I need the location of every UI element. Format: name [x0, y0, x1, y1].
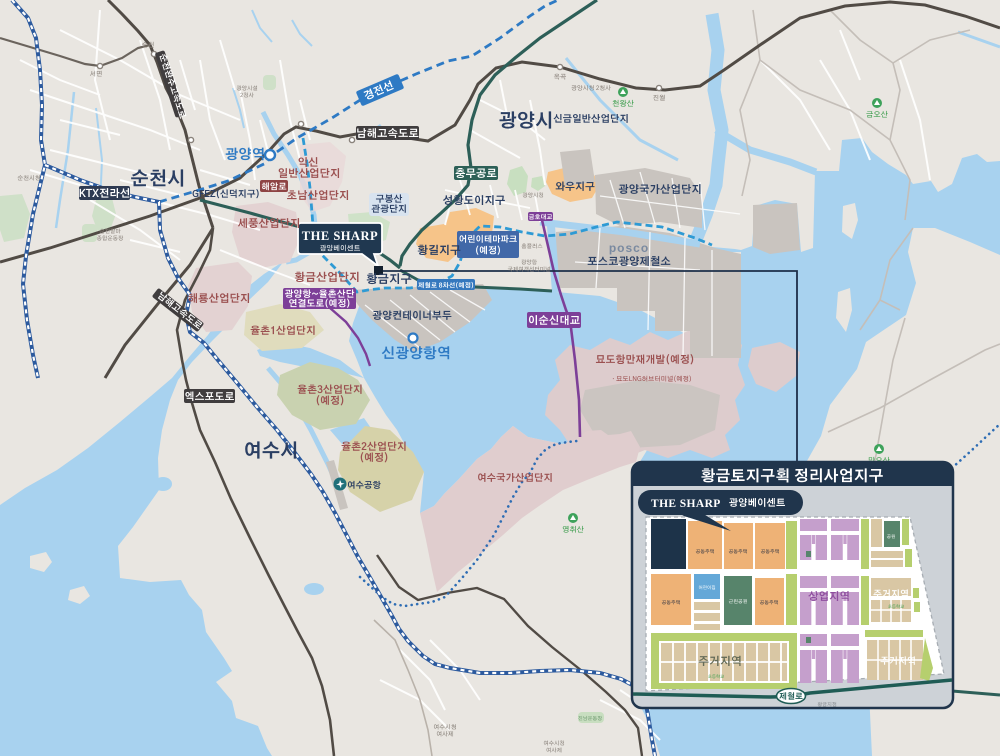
svg-text:THE SHARP: THE SHARP [302, 229, 378, 243]
svg-text:posco: posco [609, 241, 649, 255]
svg-text:THE SHARP: THE SHARP [651, 498, 721, 510]
